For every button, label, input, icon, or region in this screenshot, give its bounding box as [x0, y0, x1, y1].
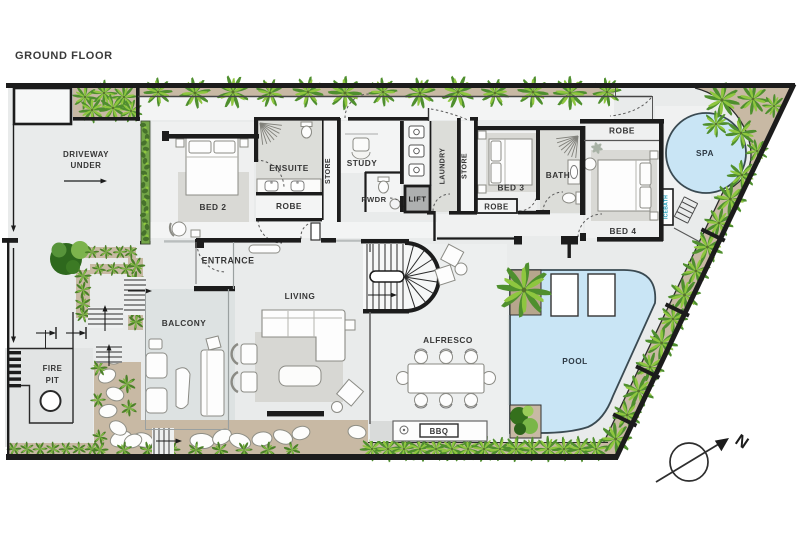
svg-text:ROBE: ROBE	[609, 126, 635, 136]
svg-text:ENTRANCE: ENTRANCE	[202, 256, 255, 266]
svg-text:PWDR: PWDR	[361, 195, 386, 204]
svg-text:BED 4: BED 4	[610, 226, 637, 236]
svg-text:STORE: STORE	[325, 158, 332, 184]
svg-text:ROBE: ROBE	[484, 203, 509, 212]
svg-text:BED 3: BED 3	[498, 183, 525, 193]
svg-text:BATH: BATH	[546, 170, 570, 180]
svg-text:N: N	[732, 431, 752, 453]
svg-text:SPA: SPA	[696, 148, 714, 158]
svg-text:LAUNDRY: LAUNDRY	[440, 148, 447, 185]
svg-text:BED 2: BED 2	[200, 202, 227, 212]
svg-text:BALCONY: BALCONY	[162, 318, 207, 328]
svg-text:DRIVEWAY: DRIVEWAY	[63, 150, 109, 159]
svg-text:PIT: PIT	[46, 376, 60, 385]
svg-text:UNDER: UNDER	[71, 161, 102, 170]
svg-text:STUDY: STUDY	[347, 158, 378, 168]
svg-text:STORE: STORE	[462, 153, 469, 179]
svg-text:ENSUITE: ENSUITE	[269, 163, 308, 173]
svg-text:ALFRESCO: ALFRESCO	[423, 335, 473, 345]
svg-text:POOL: POOL	[562, 356, 588, 366]
svg-text:ROBE: ROBE	[276, 201, 302, 211]
svg-text:BBQ: BBQ	[430, 427, 449, 436]
svg-text:GROUND FLOOR: GROUND FLOOR	[15, 50, 113, 62]
svg-text:LIVING: LIVING	[285, 291, 316, 301]
svg-text:ICEBATH: ICEBATH	[664, 195, 670, 219]
svg-text:FIRE: FIRE	[43, 364, 63, 373]
svg-text:LIFT: LIFT	[408, 195, 426, 204]
